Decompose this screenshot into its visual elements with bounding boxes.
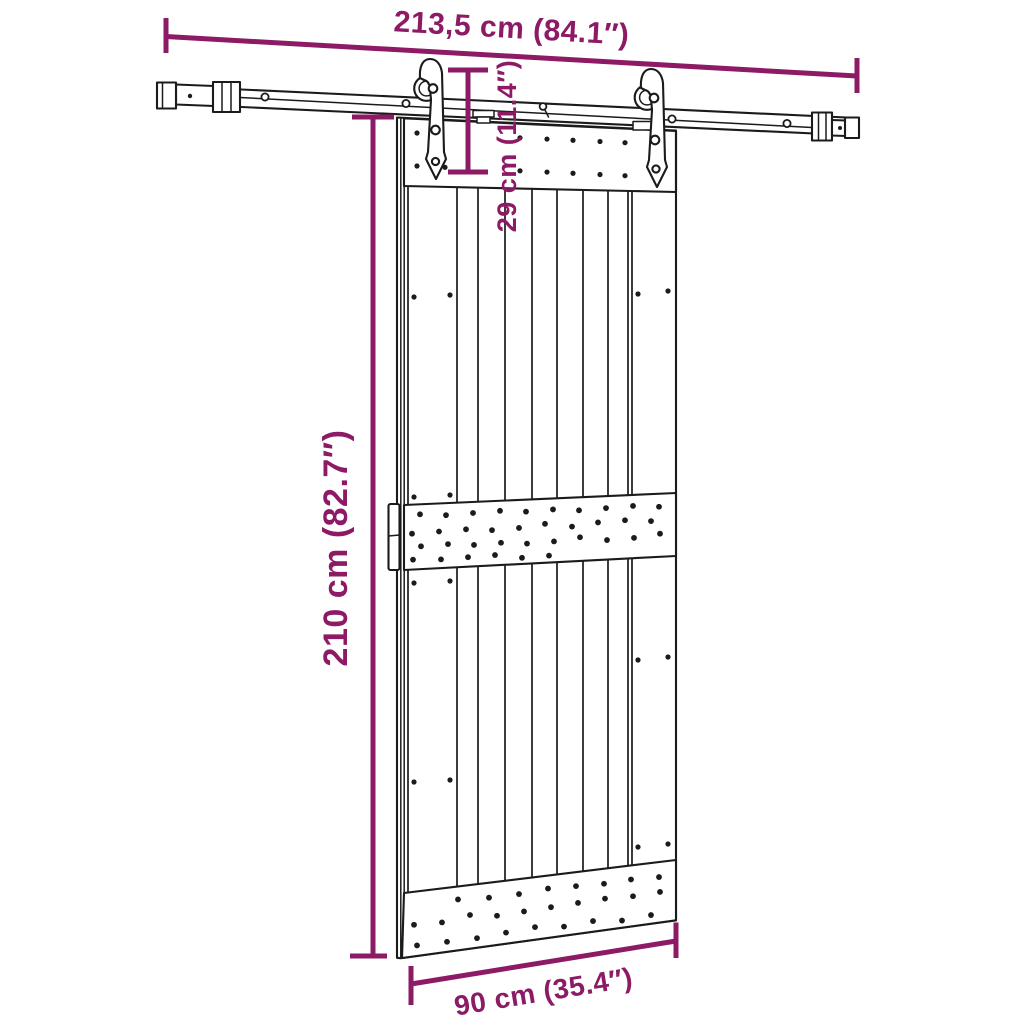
- screw-dot: [657, 531, 663, 537]
- screw-dot: [597, 172, 602, 177]
- screw-dot: [414, 163, 419, 168]
- screw-dot: [601, 881, 607, 887]
- screw-dot: [619, 918, 625, 924]
- screw-dot: [411, 779, 416, 784]
- screw-dot: [635, 657, 640, 662]
- screw-dot: [573, 883, 579, 889]
- screw-dot: [492, 552, 498, 558]
- screw-dot: [604, 537, 610, 543]
- screw-dot: [455, 897, 461, 903]
- screw-dot: [516, 525, 522, 531]
- screw-dot: [577, 534, 583, 540]
- screw-dot: [463, 526, 469, 532]
- screw-dot: [443, 512, 449, 518]
- hanger-height-label: 29 cm (11.4″): [492, 60, 522, 233]
- screw-dot: [411, 922, 417, 928]
- screw-dot: [550, 507, 556, 513]
- screw-dot: [417, 511, 423, 517]
- screw-dot: [631, 535, 637, 541]
- screw-dot: [544, 136, 549, 141]
- screw-dot: [665, 654, 670, 659]
- screw-dot: [489, 527, 495, 533]
- screw-dot: [575, 900, 581, 906]
- rail-left-end-stop: [157, 82, 240, 112]
- screw-dot: [465, 554, 471, 560]
- barn-door-dimension-diagram: 213,5 cm (84.1″) 29 cm (11.4″) 210 cm (8…: [0, 0, 1024, 1024]
- screw-dot: [411, 494, 416, 499]
- screw-dot: [551, 538, 557, 544]
- screw-dot: [597, 139, 602, 144]
- screw-dot: [570, 138, 575, 143]
- screw-dot: [498, 540, 504, 546]
- screw-dot: [409, 531, 415, 537]
- screw-dot: [576, 507, 582, 513]
- screw-dot: [418, 543, 424, 549]
- screw-dot: [410, 557, 416, 563]
- screw-dot: [622, 517, 628, 523]
- screw-dot: [603, 505, 609, 511]
- screw-dot: [630, 503, 636, 509]
- diagram-canvas: 213,5 cm (84.1″) 29 cm (11.4″) 210 cm (8…: [0, 0, 1024, 1024]
- screw-dot: [486, 895, 492, 901]
- screw-dot: [630, 893, 636, 899]
- screw-dot: [444, 939, 450, 945]
- rail-length-label: 213,5 cm (84.1″): [393, 5, 630, 52]
- screw-dot: [635, 844, 640, 849]
- screw-dot: [635, 291, 640, 296]
- screw-dot: [447, 777, 452, 782]
- screw-dot: [570, 171, 575, 176]
- screw-dot: [497, 508, 503, 514]
- screw-dot: [542, 521, 548, 527]
- screw-dot: [494, 913, 500, 919]
- screw-dot: [411, 580, 416, 585]
- screw-dot: [447, 578, 452, 583]
- screw-dot: [519, 555, 525, 561]
- screw-dot: [656, 874, 662, 880]
- screw-dot: [622, 140, 627, 145]
- screw-dot: [546, 553, 552, 559]
- screw-dot: [521, 909, 527, 915]
- screw-dot: [474, 935, 480, 941]
- screw-dot: [470, 510, 476, 516]
- screw-dot: [544, 169, 549, 174]
- screw-dot: [524, 541, 530, 547]
- screw-dot: [503, 930, 509, 936]
- screw-dot: [411, 294, 416, 299]
- screw-dot: [439, 919, 445, 925]
- screw-dot: [516, 891, 522, 897]
- screw-dot: [628, 877, 634, 883]
- screw-dot: [602, 896, 608, 902]
- screw-dot: [657, 889, 663, 895]
- screw-dot: [548, 904, 554, 910]
- screw-dot: [569, 524, 575, 530]
- screw-dot: [622, 173, 627, 178]
- screw-dot: [447, 292, 452, 297]
- screw-dot: [523, 509, 529, 515]
- screw-dot: [414, 943, 420, 949]
- screw-dot: [467, 912, 473, 918]
- screw-dot: [447, 492, 452, 497]
- screw-dot: [648, 912, 654, 918]
- screw-dot: [436, 529, 442, 535]
- screw-dot: [471, 542, 477, 548]
- screw-dot: [665, 288, 670, 293]
- screw-dot: [445, 541, 451, 547]
- dimension-door-height: 210 cm (82.7″): [317, 117, 394, 956]
- screw-dot: [561, 924, 567, 930]
- door-handle: [389, 504, 400, 570]
- screw-dot: [595, 520, 601, 526]
- screw-dot: [414, 130, 419, 135]
- screw-dot: [656, 504, 662, 510]
- screw-dot: [590, 918, 596, 924]
- door-height-label: 210 cm (82.7″): [317, 430, 355, 667]
- screw-dot: [438, 557, 444, 563]
- screw-dot: [545, 886, 551, 892]
- screw-dot: [532, 924, 538, 930]
- screw-dot: [665, 841, 670, 846]
- screw-dot: [648, 518, 654, 524]
- door: [389, 118, 677, 959]
